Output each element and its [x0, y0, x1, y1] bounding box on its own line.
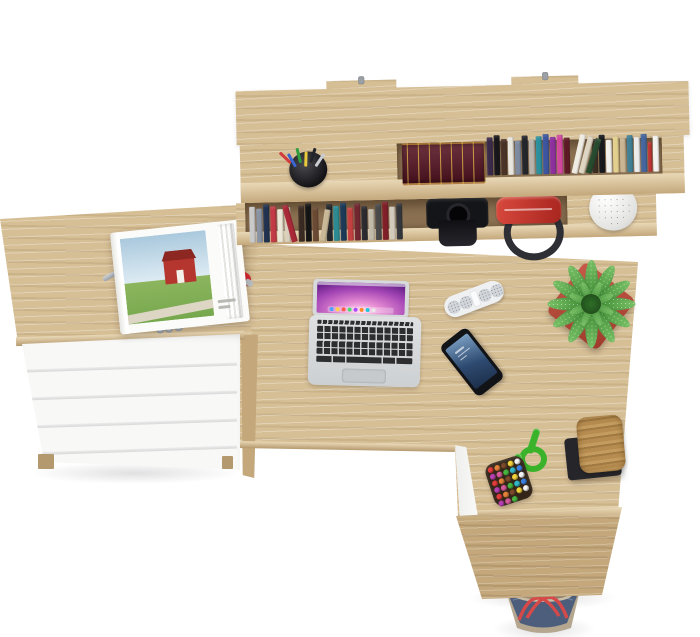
book-spine: [263, 204, 270, 242]
dock-app-icon: [330, 307, 334, 311]
book-spine: [333, 206, 340, 241]
book-spine: [508, 137, 515, 175]
book-spine: [270, 206, 277, 242]
open-magazine: [110, 219, 250, 334]
dock-app-icon: [354, 308, 358, 312]
photo-red-barn: [163, 257, 196, 284]
pen: [295, 148, 302, 163]
laptop: [308, 279, 423, 388]
laptop-dock: [328, 306, 394, 314]
book-spine: [494, 135, 501, 175]
book-spine: [648, 142, 653, 172]
book-spine: [550, 137, 557, 174]
desk-side-panel: [241, 333, 258, 478]
book-spine: [487, 137, 494, 175]
book-spine: [256, 209, 263, 243]
drawer-gap: [25, 445, 237, 455]
book-spine: [277, 209, 284, 242]
dock-app-icon: [360, 308, 364, 312]
cork-stool: [576, 414, 627, 474]
book-spine: [382, 202, 389, 240]
book-spine: [249, 207, 256, 243]
book-spine: [613, 136, 620, 172]
book-spine: [653, 136, 660, 172]
book-row-lower: [249, 195, 404, 242]
book-spine: [396, 203, 403, 239]
book-spine: [501, 139, 508, 175]
desk-succulent-plant: [545, 256, 637, 360]
mount-hook-icon: [542, 72, 548, 80]
book-spine: [529, 139, 536, 174]
drawer-gap: [25, 418, 237, 428]
book-spine: [340, 203, 347, 241]
maroon-succulent: [596, 190, 631, 225]
pen: [304, 152, 307, 167]
book-spine: [522, 136, 529, 175]
pen: [309, 148, 316, 163]
bead: [522, 484, 530, 492]
laptop-menubar: [317, 282, 405, 287]
book-spine: [298, 206, 305, 242]
laptop-lid: [312, 279, 409, 319]
book-spine: [368, 209, 375, 240]
book-spine: [543, 134, 550, 174]
laptop-body: [308, 315, 422, 388]
desk-return-end-panel: [456, 507, 622, 599]
book-spine: [375, 204, 382, 240]
book-spine: [347, 208, 354, 241]
book-spine: [536, 136, 543, 174]
book-spine: [641, 134, 648, 172]
drawer-gap: [25, 390, 237, 400]
book-spine: [557, 135, 564, 174]
book-spine: [620, 138, 627, 172]
book-spine: [606, 140, 613, 173]
dock-app-icon: [342, 307, 346, 311]
pen-cup: [289, 151, 328, 188]
desk-set-product-photo: [0, 0, 700, 637]
dock-app-icon: [348, 308, 352, 312]
pen: [314, 153, 325, 167]
book-spine: [627, 135, 634, 172]
laptop-trackpad: [342, 368, 386, 383]
magazine-photo: [120, 230, 215, 325]
dock-app-icon: [336, 307, 340, 311]
wall-hutch: [230, 63, 696, 249]
book-row-upper: [486, 128, 660, 176]
book-spine: [312, 207, 319, 241]
book-spine: [361, 206, 368, 240]
duffel-zipper: [504, 208, 552, 211]
drawer-chest-foot: [38, 454, 54, 469]
dock-app-icon: [366, 308, 370, 312]
drawer-gap: [25, 362, 237, 372]
book-spine: [305, 203, 312, 241]
book-spine: [515, 141, 522, 175]
succulent-core: [581, 294, 601, 314]
book-spine: [354, 203, 361, 240]
book-spine: [389, 207, 396, 240]
camera-strap: [438, 220, 477, 247]
red-duffel-bag: [496, 196, 562, 224]
pens: [283, 143, 334, 184]
laptop-keyboard: [316, 320, 413, 366]
laptop-screen: [317, 282, 406, 315]
dock-app-icon: [372, 308, 376, 312]
drawer-chest-foot: [222, 456, 233, 469]
book-spine: [634, 137, 641, 172]
mount-hook-icon: [358, 76, 364, 84]
antique-gilt-book-set: [402, 142, 486, 186]
book-spine: [564, 138, 571, 174]
